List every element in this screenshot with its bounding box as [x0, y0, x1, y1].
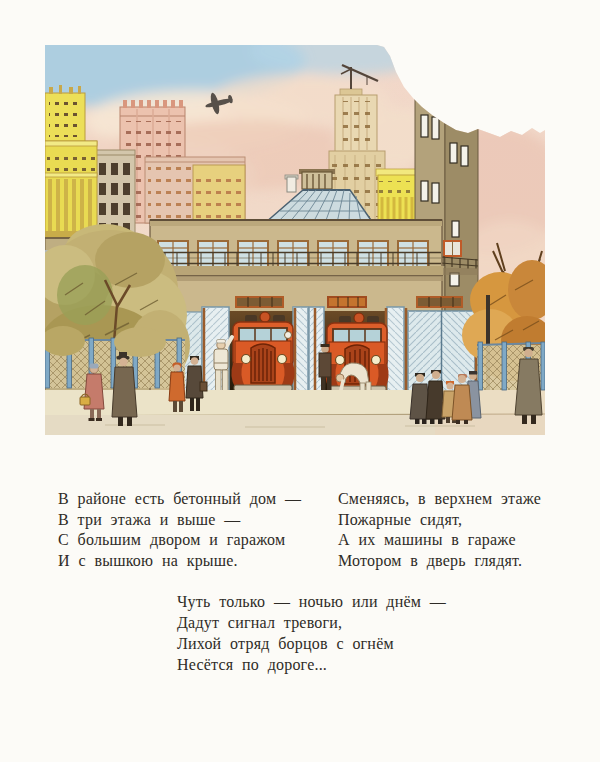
- stanza-2: Сменяясь, в верхнем этаже Пожарные сидят…: [338, 489, 541, 571]
- stanza-1: В районе есть бетонный дом — В три этажа…: [58, 489, 301, 571]
- fire-truck-2: [325, 313, 389, 399]
- book-page: В районе есть бетонный дом — В три этажа…: [0, 0, 600, 762]
- poem-line: Мотором в дверь глядят.: [338, 551, 541, 572]
- poem-line: Дадут сигнал тревоги,: [177, 612, 446, 633]
- poem-line: Лихой отряд борцов с огнём: [177, 633, 446, 654]
- poem-line: В три этажа и выше —: [58, 510, 301, 531]
- poem-line: Пожарные сидят,: [338, 510, 541, 531]
- poem-line: С большим двором и гаражом: [58, 530, 301, 551]
- vent-windows: [236, 297, 462, 307]
- poem-line: Сменяясь, в верхнем этаже: [338, 489, 541, 510]
- fire-truck-1: [229, 312, 297, 398]
- poem-line: В районе есть бетонный дом —: [58, 489, 301, 510]
- poem-line: Чуть только — ночью или днём —: [177, 591, 446, 612]
- poem-line: Несётся по дороге...: [177, 654, 446, 675]
- poem-line: И с вышкою на крыше.: [58, 551, 301, 572]
- illustration: [45, 45, 545, 435]
- poem-line: А их машины в гараже: [338, 530, 541, 551]
- stanza-3: Чуть только — ночью или днём — Дадут сиг…: [177, 591, 446, 675]
